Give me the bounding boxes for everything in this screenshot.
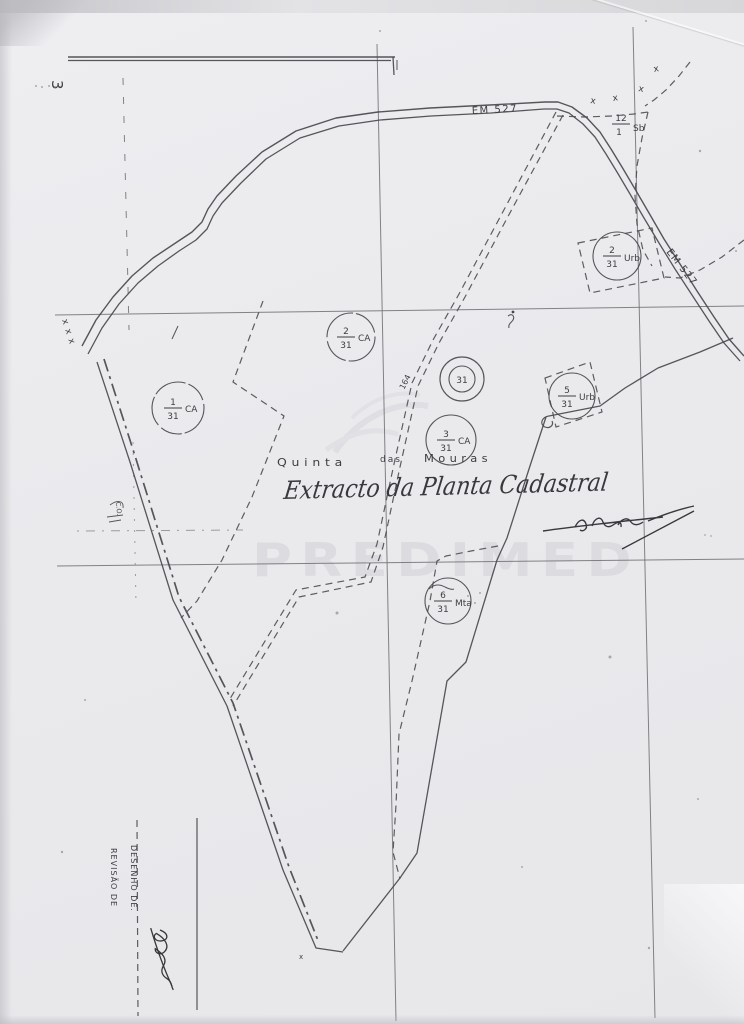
watermark-text: PREDIMED <box>252 533 640 587</box>
parcel-mta6-num: 6 <box>440 591 446 601</box>
parcel-ca2-num: 2 <box>343 327 349 337</box>
survey-x-marks: x x x x x <box>299 64 660 961</box>
road-label-em527-right: EM 527 <box>664 247 699 288</box>
parcel-ca3-suffix: CA <box>458 437 471 447</box>
x-mark: x <box>653 64 661 75</box>
parcel-urb2-den: 31 <box>606 260 617 270</box>
x-mark: x <box>299 953 303 961</box>
dashed-rect-parcel-urb2 <box>578 228 664 293</box>
bench-mark-symbol <box>508 311 514 328</box>
cadastral-map-drawing: PREDIMED <box>0 0 744 1024</box>
place-name-word2: das <box>380 455 402 465</box>
parcel-sb-suffix: Sb <box>633 124 645 134</box>
contour-dashdot-left <box>77 530 243 531</box>
scanned-cadastral-map-page: PREDIMED <box>0 0 744 1024</box>
place-name: Quinta das Mouras <box>277 453 492 469</box>
x-mark: x <box>637 84 645 95</box>
title-block: DESENHO DE. REVISÃO DE <box>109 818 197 1016</box>
parcel-label-ca2: 2 31 CA <box>337 327 371 351</box>
parcel-sb-den: 1 <box>616 128 622 138</box>
track-double-dash-line-2 <box>233 115 563 706</box>
top-border-double-line <box>68 57 397 75</box>
parcel-label-urb5: 5 31 Urb <box>558 386 595 410</box>
grid-line-dotted-left <box>133 442 136 604</box>
survey-co-label: C.O. <box>114 501 123 515</box>
tick-mark <box>172 326 178 339</box>
road-em527-south-edge <box>88 109 740 361</box>
place-name-word3: Mouras <box>424 453 492 465</box>
parcel-label-urb2: 2 31 Urb <box>603 246 640 270</box>
parcel-urb5-num: 5 <box>564 386 570 396</box>
parcel-ca1-suffix: CA <box>185 405 198 415</box>
parcel-31-label: 31 <box>456 376 467 386</box>
grid-line-horizontal-upper <box>55 306 744 315</box>
parcel-label-ca3: 3 31 CA <box>437 430 471 454</box>
parcel-urb5-suffix: Urb <box>579 393 595 403</box>
parcel-mta6-suffix: Mta <box>455 599 472 609</box>
survey-xxx-mark: x x x <box>59 318 77 346</box>
parcel-ca3-num: 3 <box>443 430 449 440</box>
x-mark: x <box>612 93 619 104</box>
signature-drawn-by <box>151 926 174 991</box>
parcel-label-mta6: 6 31 Mta <box>434 591 472 615</box>
x-mark: x <box>589 96 597 107</box>
title-block-desenho: DESENHO DE. <box>129 845 138 912</box>
road-em527-north-edge <box>82 102 744 356</box>
parcel-label-sb: 12 1 Sb <box>612 114 645 138</box>
parcel-ca1-den: 31 <box>167 412 178 422</box>
handwritten-title: Extracto da Planta Cadastral <box>281 468 610 505</box>
dashed-limit-upper-corner <box>645 62 690 106</box>
grid-line-dashed-top-left <box>123 78 129 330</box>
parcel-mta6-den: 31 <box>437 605 448 615</box>
survey-co-mark: C.O. <box>107 501 123 522</box>
place-name-word1: Quinta <box>277 457 347 469</box>
watermark-logo <box>326 394 428 452</box>
title-block-revisao: REVISÃO DE <box>109 848 119 907</box>
parcel-ca1-num: 1 <box>170 398 176 408</box>
sheet-number: 3 <box>48 80 66 90</box>
parcel-ca2-suffix: CA <box>358 334 371 344</box>
parcel-urb2-suffix: Urb <box>624 254 640 264</box>
parcel-ca2-den: 31 <box>340 341 351 351</box>
parcel-label-ca1: 1 31 CA <box>164 398 198 422</box>
parcel-urb2-num: 2 <box>609 246 615 256</box>
parcel-sb-num: 12 <box>615 114 626 124</box>
parcel-urb5-den: 31 <box>561 400 572 410</box>
road-label-em527-top: EM 527 <box>472 104 519 117</box>
